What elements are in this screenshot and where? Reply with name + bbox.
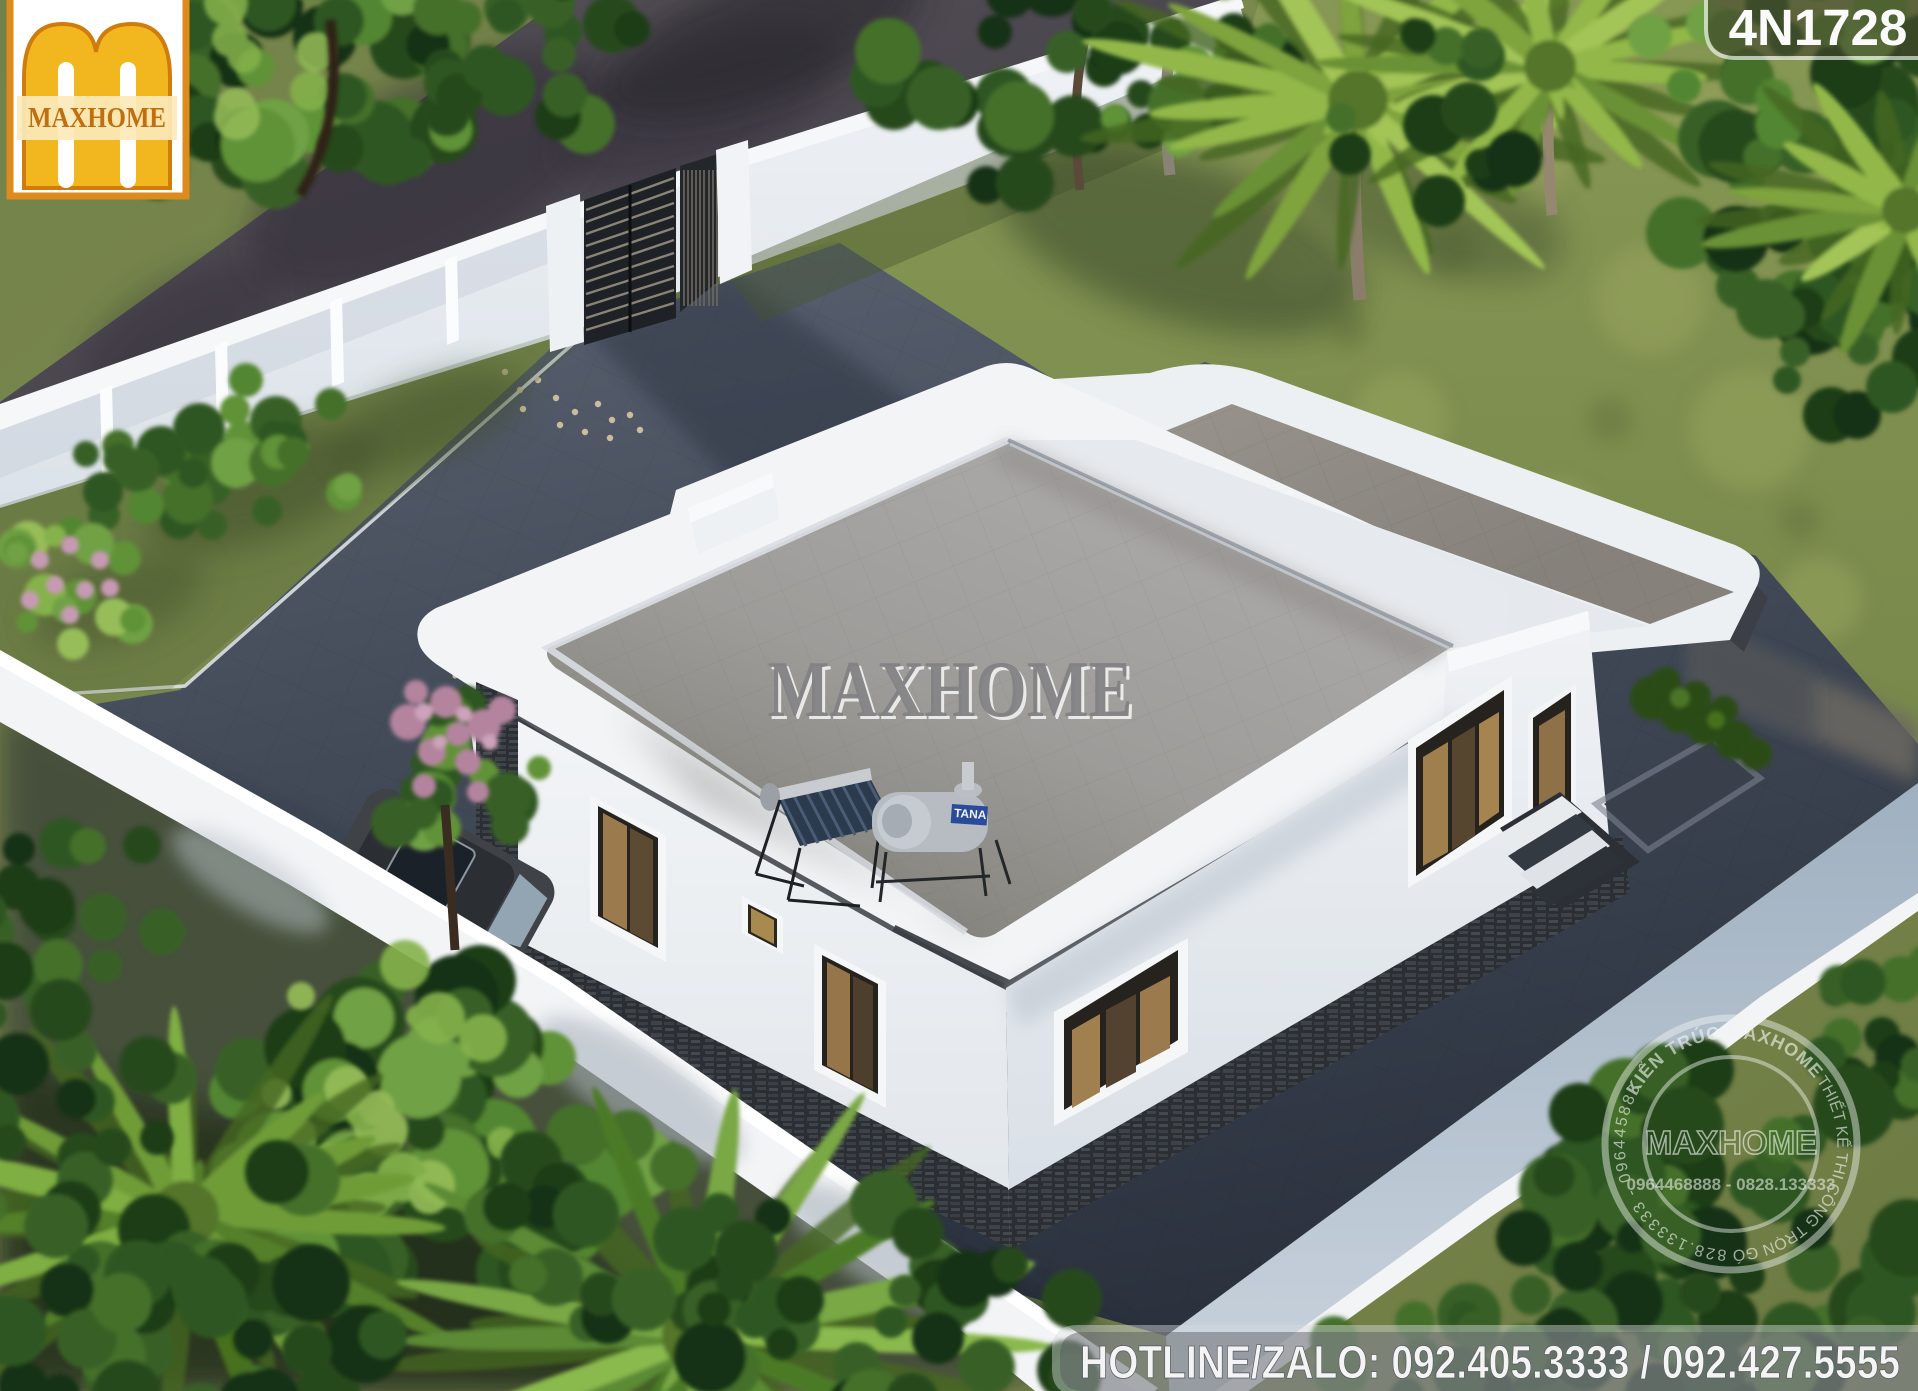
svg-text:MAXHOME: MAXHOME: [1645, 1124, 1817, 1161]
svg-text:0964468888 - 0828.133333: 0964468888 - 0828.133333: [1627, 1175, 1836, 1194]
svg-text:MAXHOME: MAXHOME: [768, 646, 1133, 734]
svg-text:TANA: TANA: [954, 806, 988, 822]
svg-text:HOTLINE/ZALO: 092.405.3333 / 0: HOTLINE/ZALO: 092.405.3333 / 092.427.555…: [1080, 1336, 1900, 1388]
svg-text:4N1728: 4N1728: [1729, 0, 1908, 56]
svg-text:MAXHOME: MAXHOME: [28, 102, 166, 134]
